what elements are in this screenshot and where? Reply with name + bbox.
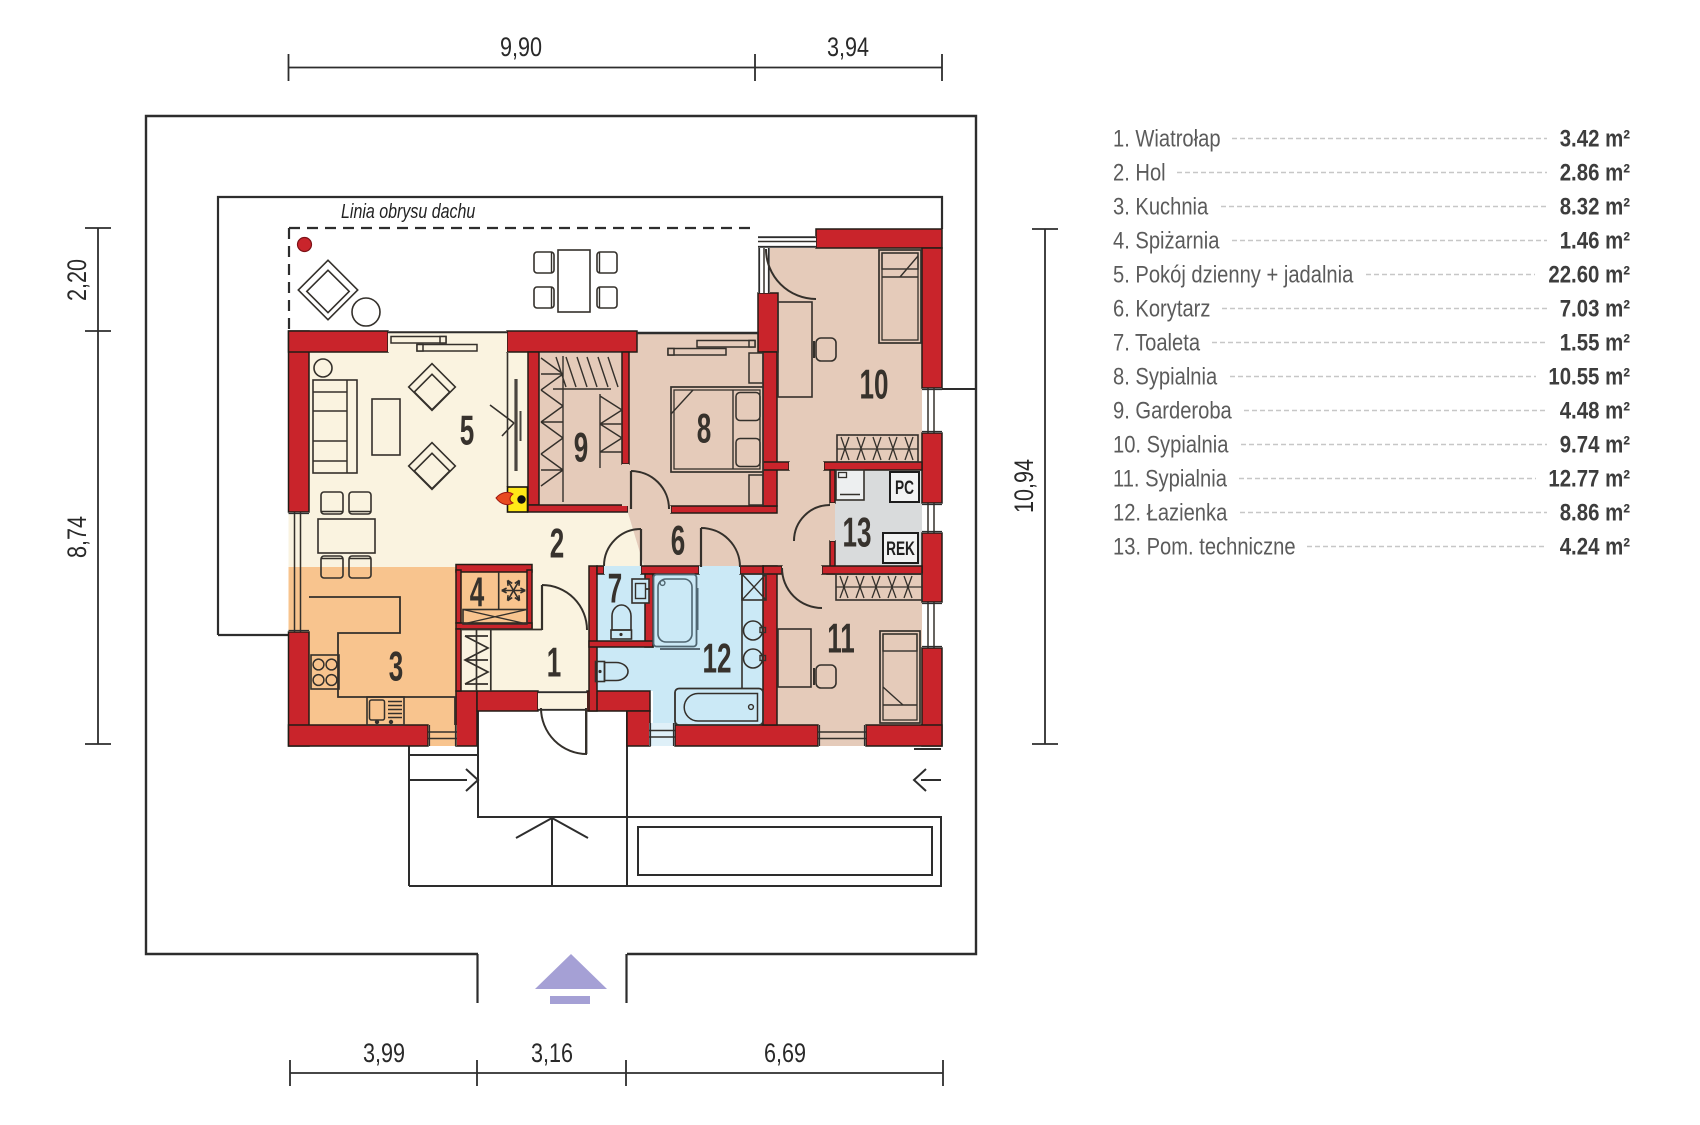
svg-text:REK: REK <box>886 538 915 560</box>
svg-text:8.32 m²: 8.32 m² <box>1560 193 1630 220</box>
svg-text:3,16: 3,16 <box>531 1039 573 1069</box>
svg-text:9,90: 9,90 <box>500 33 542 63</box>
svg-text:9. Garderoba: 9. Garderoba <box>1113 397 1232 424</box>
svg-text:PC: PC <box>895 477 914 499</box>
svg-text:4.48 m²: 4.48 m² <box>1560 397 1630 424</box>
svg-text:11. Sypialnia: 11. Sypialnia <box>1113 465 1228 492</box>
svg-text:6: 6 <box>671 517 685 564</box>
svg-text:5. Pokój dzienny + jadalnia: 5. Pokój dzienny + jadalnia <box>1113 261 1354 288</box>
svg-text:5: 5 <box>460 407 474 454</box>
svg-text:2.86 m²: 2.86 m² <box>1560 159 1630 186</box>
svg-text:12: 12 <box>703 635 732 682</box>
svg-text:8. Sypialnia: 8. Sypialnia <box>1113 363 1218 390</box>
svg-text:4: 4 <box>470 569 485 616</box>
svg-text:10,94: 10,94 <box>1010 459 1040 513</box>
svg-text:8.86 m²: 8.86 m² <box>1560 499 1630 526</box>
svg-text:6,69: 6,69 <box>764 1039 806 1069</box>
svg-text:Linia obrysu dachu: Linia obrysu dachu <box>341 200 475 222</box>
svg-text:9: 9 <box>574 424 588 471</box>
svg-text:2,20: 2,20 <box>63 259 93 301</box>
svg-text:1.46 m²: 1.46 m² <box>1560 227 1630 254</box>
svg-text:10. Sypialnia: 10. Sypialnia <box>1113 431 1229 458</box>
svg-text:3.42 m²: 3.42 m² <box>1560 125 1630 152</box>
svg-text:8,74: 8,74 <box>63 516 93 558</box>
svg-text:3. Kuchnia: 3. Kuchnia <box>1113 193 1209 220</box>
svg-text:9.74 m²: 9.74 m² <box>1560 431 1630 458</box>
svg-text:10.55 m²: 10.55 m² <box>1548 363 1630 390</box>
svg-text:10: 10 <box>860 361 889 408</box>
svg-text:12.77 m²: 12.77 m² <box>1548 465 1630 492</box>
svg-text:1: 1 <box>547 639 561 686</box>
svg-text:13. Pom. techniczne: 13. Pom. techniczne <box>1113 533 1296 560</box>
svg-text:7: 7 <box>608 565 622 612</box>
svg-text:7. Toaleta: 7. Toaleta <box>1113 329 1201 356</box>
svg-text:4.24 m²: 4.24 m² <box>1560 533 1630 560</box>
svg-text:7.03 m²: 7.03 m² <box>1560 295 1630 322</box>
svg-text:3,99: 3,99 <box>363 1039 405 1069</box>
svg-text:3: 3 <box>389 643 403 690</box>
svg-text:6. Korytarz: 6. Korytarz <box>1113 295 1210 322</box>
svg-text:4. Spiżarnia: 4. Spiżarnia <box>1113 227 1220 254</box>
svg-text:1.55 m²: 1.55 m² <box>1560 329 1630 356</box>
svg-text:22.60 m²: 22.60 m² <box>1548 261 1630 288</box>
svg-text:12. Łazienka: 12. Łazienka <box>1113 499 1228 526</box>
svg-text:13: 13 <box>843 509 872 556</box>
svg-text:2. Hol: 2. Hol <box>1113 159 1166 186</box>
svg-text:11: 11 <box>827 615 855 662</box>
svg-text:8: 8 <box>697 405 711 452</box>
svg-text:1. Wiatrołap: 1. Wiatrołap <box>1113 125 1221 152</box>
svg-text:3,94: 3,94 <box>827 33 869 63</box>
svg-text:2: 2 <box>550 520 564 567</box>
